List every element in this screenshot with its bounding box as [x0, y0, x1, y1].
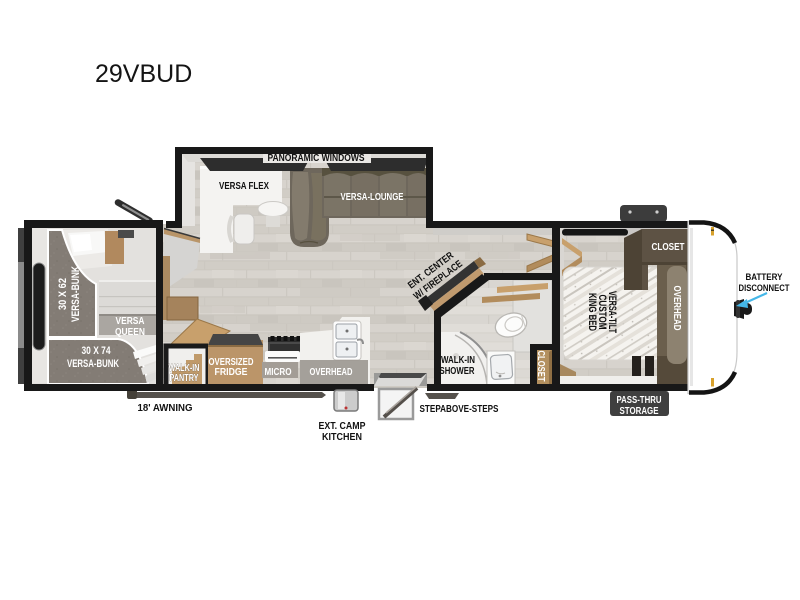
svg-text:30 X 74: 30 X 74	[82, 345, 112, 357]
svg-text:EXT. CAMP: EXT. CAMP	[319, 421, 366, 432]
svg-text:OVERHEAD: OVERHEAD	[671, 286, 683, 331]
svg-text:PASS-THRU: PASS-THRU	[617, 395, 662, 406]
svg-text:PANTRY: PANTRY	[170, 373, 199, 384]
svg-text:STORAGE: STORAGE	[620, 406, 659, 417]
svg-text:29VBUD: 29VBUD	[95, 60, 192, 88]
svg-text:KITCHEN: KITCHEN	[322, 432, 362, 443]
svg-text:30 X 62: 30 X 62	[57, 278, 69, 310]
svg-text:BATTERY: BATTERY	[746, 272, 783, 282]
svg-text:CLOSET: CLOSET	[652, 241, 685, 253]
svg-text:DISCONNECT: DISCONNECT	[739, 283, 790, 293]
svg-text:VERSA-LOUNGE: VERSA-LOUNGE	[341, 191, 404, 203]
svg-text:FRIDGE: FRIDGE	[215, 367, 248, 378]
svg-text:PANORAMIC WINDOWS: PANORAMIC WINDOWS	[268, 153, 365, 164]
svg-text:OVERHEAD: OVERHEAD	[310, 367, 353, 378]
svg-text:18' AWNING: 18' AWNING	[138, 403, 193, 414]
svg-text:VERSA-BUNK: VERSA-BUNK	[67, 358, 119, 370]
svg-text:QUEEN: QUEEN	[115, 326, 145, 338]
svg-text:VERSA-BUNK: VERSA-BUNK	[70, 266, 82, 322]
svg-text:MICRO: MICRO	[265, 367, 292, 378]
svg-text:STEPABOVE-STEPS: STEPABOVE-STEPS	[420, 403, 499, 415]
svg-text:SHOWER: SHOWER	[440, 365, 475, 377]
svg-text:VERSA FLEX: VERSA FLEX	[219, 180, 269, 192]
svg-text:KING BED: KING BED	[586, 293, 598, 331]
svg-text:CLOSET: CLOSET	[535, 351, 546, 382]
